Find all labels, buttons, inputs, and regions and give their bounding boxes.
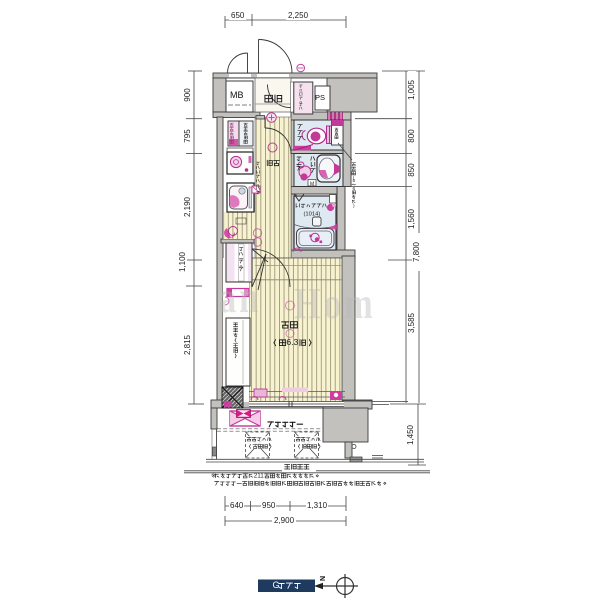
svg-text:211: 211: [254, 473, 265, 480]
svg-text:N: N: [320, 576, 327, 581]
svg-text:): ): [353, 203, 355, 208]
svg-text:6.3: 6.3: [286, 337, 298, 347]
svg-text:G: G: [273, 580, 280, 590]
svg-text:5: 5: [352, 178, 355, 183]
svg-text:M: M: [310, 181, 314, 187]
svg-text:6: 6: [352, 186, 355, 191]
svg-text:(1014): (1014): [304, 211, 321, 217]
